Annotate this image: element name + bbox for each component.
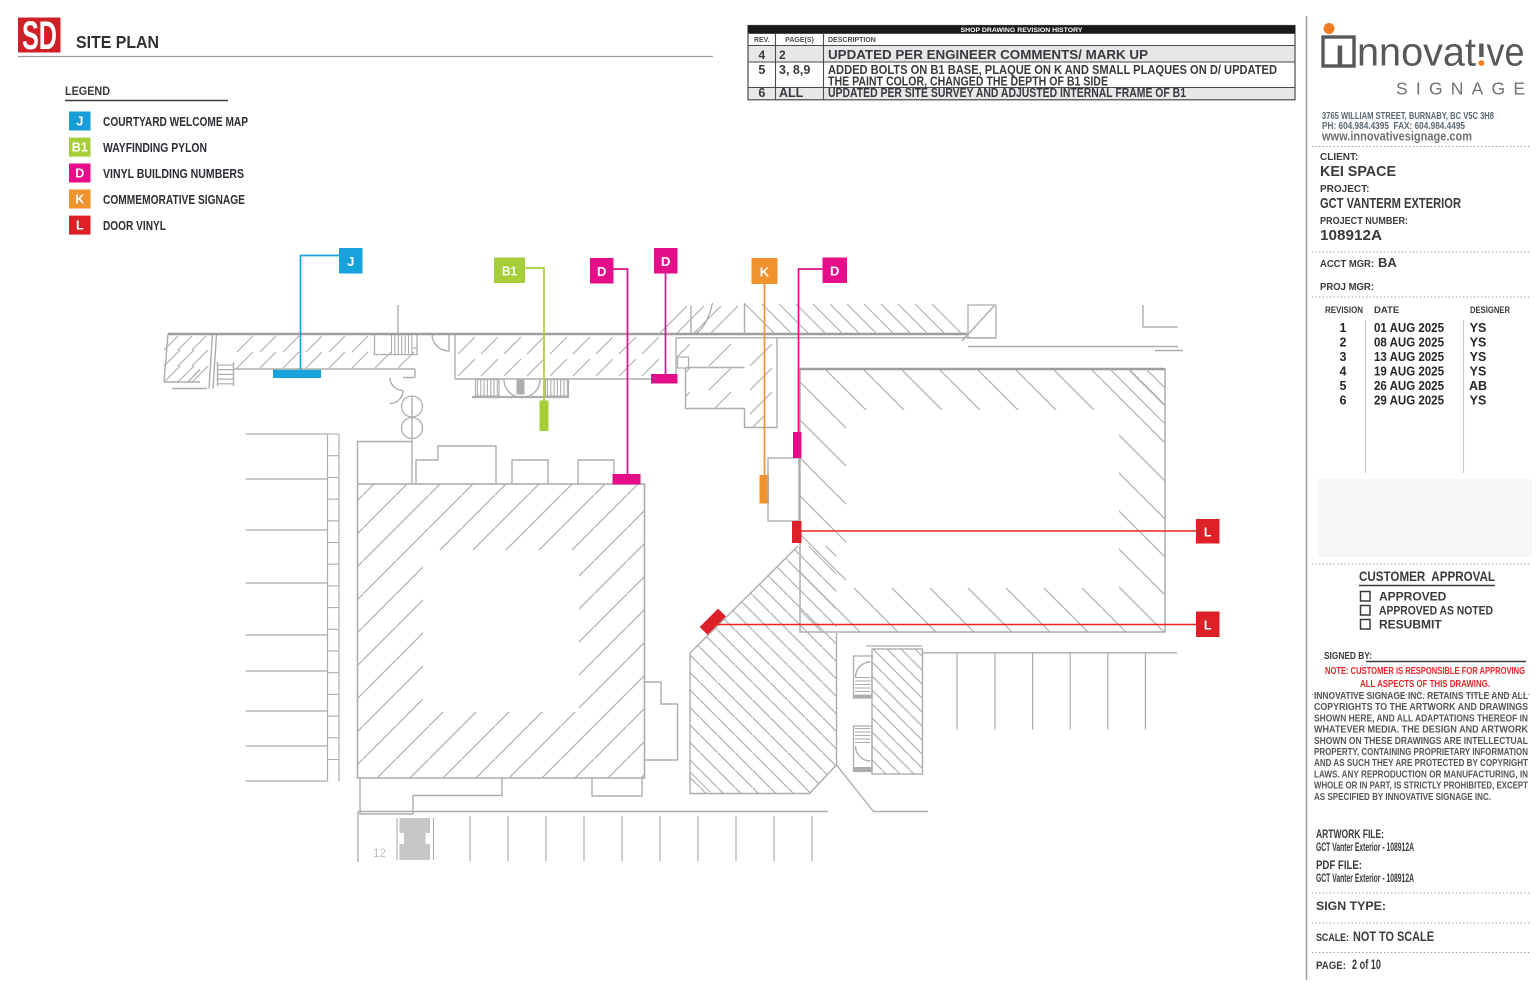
svg-text:D: D — [661, 254, 670, 269]
svg-text:NOT TO SCALE: NOT TO SCALE — [1353, 929, 1434, 944]
svg-text:ACCT MGR:: ACCT MGR: — [1320, 258, 1374, 270]
svg-text:AND AS SUCH THEY ARE PROTECTED: AND AS SUCH THEY ARE PROTECTED BY COPYRI… — [1314, 758, 1528, 769]
svg-text:ALL ASPECTS OF THIS DRAWING.: ALL ASPECTS OF THIS DRAWING. — [1360, 679, 1490, 690]
svg-text:WHATEVER MEDIA. THE DESIGN AND: WHATEVER MEDIA. THE DESIGN AND ARTWORK — [1314, 725, 1528, 736]
svg-text:APPROVED AS NOTED: APPROVED AS NOTED — [1379, 604, 1493, 618]
svg-text:WHOLE OR IN PART, IS STRICTLY: WHOLE OR IN PART, IS STRICTLY PROHIBITED… — [1314, 781, 1528, 792]
svg-text:SIGNED BY:: SIGNED BY: — [1324, 650, 1372, 662]
svg-text:01 AUG 2025: 01 AUG 2025 — [1374, 321, 1444, 335]
svg-text:YS: YS — [1470, 394, 1487, 408]
svg-text:4: 4 — [1340, 365, 1347, 379]
svg-text:1: 1 — [1340, 321, 1347, 335]
svg-text:COMMEMORATIVE SIGNAGE: COMMEMORATIVE SIGNAGE — [103, 193, 245, 207]
svg-text:PROPERTY, CONTAINING PROPRIETA: PROPERTY, CONTAINING PROPRIETARY INFORMA… — [1314, 747, 1528, 758]
svg-text:13 AUG 2025: 13 AUG 2025 — [1374, 350, 1444, 364]
svg-text:PROJECT NUMBER:: PROJECT NUMBER: — [1320, 216, 1408, 227]
svg-text:L: L — [1204, 526, 1212, 540]
svg-text:CLIENT:: CLIENT: — [1320, 152, 1358, 163]
svg-text:VINYL BUILDING NUMBERS: VINYL BUILDING NUMBERS — [103, 167, 244, 181]
svg-text:SCALE:: SCALE: — [1316, 932, 1349, 944]
svg-text:COPYRIGHTS TO THE ARTWORK AND: COPYRIGHTS TO THE ARTWORK AND DRAWINGS — [1314, 702, 1528, 713]
svg-text:BA: BA — [1378, 255, 1397, 270]
svg-text:3: 3 — [1340, 350, 1347, 364]
svg-text:5: 5 — [758, 63, 765, 77]
svg-text:D: D — [597, 264, 606, 279]
svg-text:L: L — [1204, 619, 1212, 633]
svg-text:K: K — [75, 193, 84, 207]
svg-text:DESCRIPTION: DESCRIPTION — [828, 37, 876, 44]
svg-text:SD: SD — [22, 14, 57, 58]
svg-text:AB: AB — [1469, 379, 1487, 393]
svg-text:29 AUG 2025: 29 AUG 2025 — [1374, 394, 1444, 408]
svg-text:26 AUG 2025: 26 AUG 2025 — [1374, 379, 1444, 393]
svg-text:4: 4 — [758, 48, 765, 62]
svg-text:YS: YS — [1470, 336, 1487, 350]
svg-text:WAYFINDING PYLON: WAYFINDING PYLON — [103, 141, 207, 155]
svg-text:ARTWORK FILE:: ARTWORK FILE: — [1316, 827, 1384, 841]
svg-text:D: D — [75, 167, 84, 181]
svg-text:GCT VANTERM EXTERIOR: GCT VANTERM EXTERIOR — [1320, 195, 1461, 212]
svg-text:SIGNAGE: SIGNAGE — [1396, 79, 1525, 99]
svg-text:ALL: ALL — [779, 86, 804, 100]
svg-text:PAGE(S): PAGE(S) — [785, 37, 814, 44]
svg-text:6: 6 — [758, 86, 765, 100]
svg-text:LEGEND: LEGEND — [65, 84, 110, 98]
svg-text:19 AUG 2025: 19 AUG 2025 — [1374, 365, 1444, 379]
svg-text:PDF FILE:: PDF FILE: — [1316, 858, 1362, 872]
svg-text:UPDATED PER ENGINEER COMMENTS/: UPDATED PER ENGINEER COMMENTS/ MARK UP — [828, 47, 1148, 62]
svg-text:KEI SPACE: KEI SPACE — [1320, 163, 1396, 180]
svg-text:REV.: REV. — [754, 37, 770, 44]
svg-text:SITE PLAN: SITE PLAN — [76, 32, 159, 52]
svg-text:ve: ve — [1487, 31, 1525, 75]
svg-text:YS: YS — [1470, 350, 1487, 364]
svg-text:DOOR VINYL: DOOR VINYL — [103, 219, 166, 233]
svg-text:2 of 10: 2 of 10 — [1352, 957, 1381, 972]
svg-text:UPDATED PER SITE SURVEY AND AD: UPDATED PER SITE SURVEY AND ADJUSTED INT… — [828, 86, 1186, 100]
svg-text:5: 5 — [1340, 379, 1347, 393]
svg-text:L: L — [76, 219, 84, 233]
svg-text:PROJECT:: PROJECT: — [1320, 184, 1369, 195]
svg-text:nnovat: nnovat — [1357, 31, 1476, 75]
svg-text:COURTYARD WELCOME MAP: COURTYARD WELCOME MAP — [103, 115, 248, 129]
svg-text:RESUBMIT: RESUBMIT — [1379, 618, 1442, 632]
svg-text:GCT Vanter Exterior - 108912A: GCT Vanter Exterior - 108912A — [1316, 871, 1414, 885]
svg-text:D: D — [830, 264, 839, 279]
svg-text:GCT Vanter Exterior - 108912A: GCT Vanter Exterior - 108912A — [1316, 840, 1414, 854]
svg-text:REVISION: REVISION — [1325, 305, 1363, 316]
svg-text:SHOWN ON THESE DRAWINGS ARE IN: SHOWN ON THESE DRAWINGS ARE INTELLECTUAL — [1314, 736, 1528, 747]
svg-text:J: J — [347, 254, 354, 269]
svg-text:AS SPECIFIED BY INNOVATIVE SIG: AS SPECIFIED BY INNOVATIVE SIGNAGE INC. — [1314, 792, 1491, 803]
svg-text:J: J — [76, 115, 83, 129]
svg-text:SHOWN HERE, AND ALL ADAPTATION: SHOWN HERE, AND ALL ADAPTATIONS THEREOF … — [1314, 713, 1528, 724]
svg-text:YS: YS — [1470, 365, 1487, 379]
svg-text:PAGE:: PAGE: — [1316, 960, 1346, 972]
svg-text:SIGN TYPE:: SIGN TYPE: — [1316, 899, 1386, 913]
svg-text:2: 2 — [779, 48, 786, 62]
svg-text:APPROVED: APPROVED — [1379, 590, 1447, 604]
svg-text:www.innovativesignage.com: www.innovativesignage.com — [1321, 129, 1472, 144]
svg-text:6: 6 — [1340, 394, 1347, 408]
svg-text:B1: B1 — [502, 264, 517, 279]
svg-text:LAWS. ANY REPRODUCTION OR MANU: LAWS. ANY REPRODUCTION OR MANUFACTURING,… — [1314, 769, 1528, 780]
svg-text:INNOVATIVE SIGNAGE INC. RETAIN: INNOVATIVE SIGNAGE INC. RETAINS TITLE AN… — [1314, 691, 1528, 702]
svg-text:K: K — [760, 265, 770, 280]
svg-text:CUSTOMER APPROVAL: CUSTOMER APPROVAL — [1359, 568, 1495, 584]
svg-text:DATE: DATE — [1374, 305, 1399, 316]
svg-text:B1: B1 — [72, 141, 88, 155]
svg-text:DESIGNER: DESIGNER — [1470, 305, 1510, 316]
svg-text:2: 2 — [1340, 336, 1347, 350]
svg-text:08 AUG 2025: 08 AUG 2025 — [1374, 336, 1444, 350]
svg-text:3, 8,9: 3, 8,9 — [779, 63, 810, 77]
svg-text:108912A: 108912A — [1320, 227, 1382, 244]
svg-text:YS: YS — [1470, 321, 1487, 335]
svg-text:PROJ MGR:: PROJ MGR: — [1320, 281, 1374, 293]
svg-text:NOTE: CUSTOMER IS RESPONSIBLE: NOTE: CUSTOMER IS RESPONSIBLE FOR APPROV… — [1325, 666, 1525, 677]
svg-text:12: 12 — [373, 848, 386, 860]
